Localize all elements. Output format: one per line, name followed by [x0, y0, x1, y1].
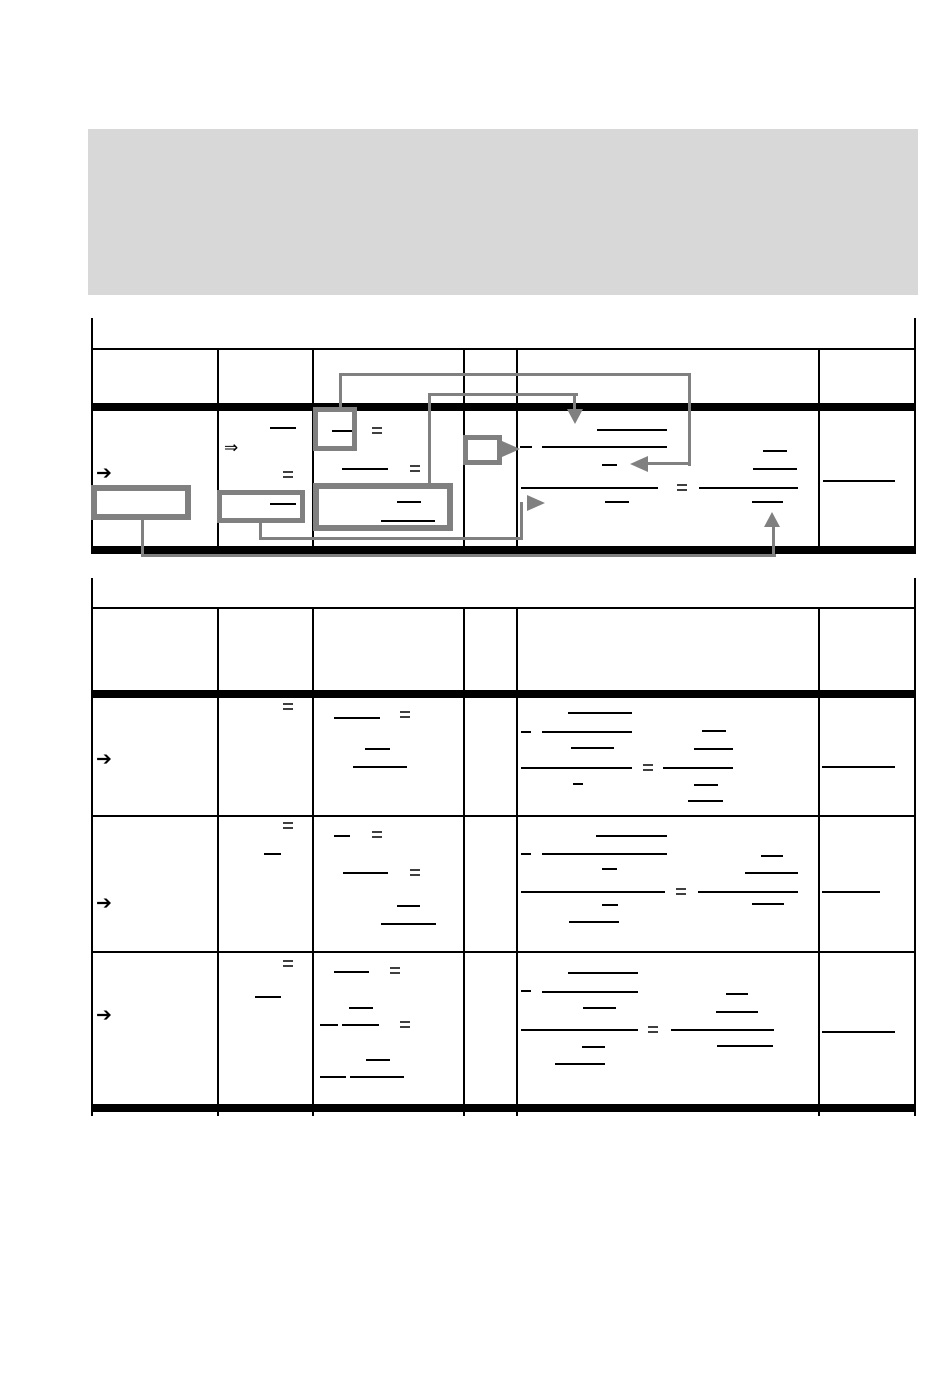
column-divider — [217, 609, 219, 1104]
answer-blank — [349, 1007, 373, 1009]
table-border-right — [914, 578, 916, 1112]
answer-blank — [694, 784, 718, 786]
divider-stub — [463, 1112, 465, 1116]
answer-blank — [542, 853, 667, 855]
equals-sign — [400, 711, 410, 718]
equals-sign — [283, 703, 293, 710]
row-divider — [91, 951, 916, 953]
row-pointer-arrow-icon: ➔ — [96, 894, 112, 913]
answer-blank — [521, 990, 531, 992]
answer-blank — [521, 767, 632, 769]
answer-blank — [571, 747, 614, 749]
answer-blank — [602, 868, 617, 870]
answer-blank — [255, 996, 281, 998]
row-pointer-arrow-icon: ➔ — [96, 1006, 112, 1025]
answer-blank — [542, 731, 632, 733]
answer-blank — [702, 730, 726, 732]
row-divider — [91, 815, 916, 817]
answer-blank — [334, 971, 369, 973]
answer-blank — [569, 921, 619, 923]
divider-stub — [312, 1112, 314, 1116]
equals-sign — [372, 831, 382, 838]
answer-blank — [334, 835, 350, 837]
equals-sign — [676, 888, 686, 895]
answer-blank — [716, 1011, 758, 1013]
header-rule-top — [91, 607, 916, 609]
answer-blank — [381, 923, 436, 925]
answer-blank — [822, 891, 880, 893]
divider-stub — [217, 1112, 219, 1116]
answer-blank — [573, 783, 583, 785]
column-divider — [516, 609, 518, 1104]
answer-blank — [596, 835, 667, 837]
worksheet-page: ➔⇒ ➔➔➔ — [0, 0, 950, 1375]
answer-blank — [671, 1029, 774, 1031]
answer-blank — [726, 993, 748, 995]
answer-blank — [568, 972, 638, 974]
answer-blank — [694, 748, 733, 750]
answer-blank — [663, 767, 733, 769]
column-divider — [463, 609, 465, 1104]
answer-blank — [568, 712, 632, 714]
answer-blank — [320, 1024, 338, 1026]
row-pointer-arrow-icon: ➔ — [96, 750, 112, 769]
divider-stub — [914, 1112, 916, 1116]
answer-blank — [343, 872, 388, 874]
answer-blank — [582, 1046, 605, 1048]
column-divider — [818, 609, 820, 1104]
answer-blank — [521, 731, 531, 733]
table-border-left — [91, 578, 93, 1112]
answer-blank — [602, 904, 618, 906]
answer-blank — [365, 748, 390, 750]
thick-rule — [91, 1104, 916, 1112]
equals-sign — [643, 764, 653, 771]
equals-sign — [390, 967, 400, 974]
thick-rule — [91, 690, 916, 698]
answer-blank — [521, 891, 665, 893]
answer-blank — [555, 1063, 605, 1065]
equals-sign — [410, 869, 420, 876]
table-2: ➔➔➔ — [0, 0, 950, 1375]
column-divider — [312, 609, 314, 1104]
equals-sign — [283, 822, 293, 829]
answer-blank — [822, 1031, 895, 1033]
divider-stub — [516, 1112, 518, 1116]
equals-sign — [400, 1021, 410, 1028]
answer-blank — [350, 1076, 404, 1078]
answer-blank — [264, 853, 281, 855]
answer-blank — [397, 905, 420, 907]
answer-blank — [688, 800, 723, 802]
answer-blank — [822, 766, 895, 768]
divider-stub — [91, 1112, 93, 1116]
answer-blank — [521, 853, 531, 855]
answer-blank — [353, 766, 407, 768]
equals-sign — [283, 960, 293, 967]
answer-blank — [542, 991, 638, 993]
answer-blank — [583, 1007, 616, 1009]
answer-blank — [366, 1059, 390, 1061]
answer-blank — [698, 891, 798, 893]
answer-blank — [717, 1045, 773, 1047]
equals-sign — [648, 1026, 658, 1033]
answer-blank — [334, 717, 380, 719]
answer-blank — [342, 1024, 379, 1026]
answer-blank — [752, 903, 784, 905]
answer-blank — [320, 1076, 346, 1078]
answer-blank — [521, 1029, 638, 1031]
divider-stub — [818, 1112, 820, 1116]
answer-blank — [745, 872, 798, 874]
answer-blank — [761, 855, 783, 857]
